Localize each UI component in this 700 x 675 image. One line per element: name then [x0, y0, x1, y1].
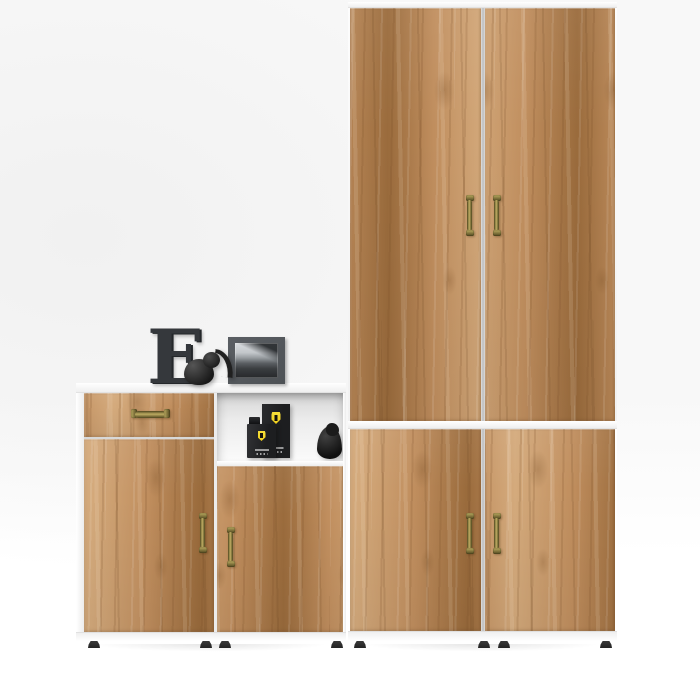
- panel-edge-right: [343, 393, 346, 632]
- scene: E: [0, 0, 700, 675]
- sideboard-base: [76, 632, 346, 641]
- panel-edge-left: [76, 393, 84, 632]
- sideboard-left-door: [84, 439, 214, 632]
- sideboard-right-door-handle: [227, 527, 235, 567]
- adjustable-foot: [478, 641, 490, 648]
- cabinet-top-surface: [348, 421, 617, 429]
- adjustable-foot: [498, 641, 510, 648]
- perfume-bottle: [247, 417, 276, 458]
- sideboard-right-column: [217, 393, 343, 632]
- open-shelf-niche: [217, 393, 343, 461]
- cabinet-base: [348, 631, 617, 641]
- wardrobe-left-door-handle: [466, 195, 474, 236]
- adjustable-foot: [88, 641, 100, 648]
- cabinet-left-door-handle: [466, 513, 474, 554]
- sideboard-left-door-handle: [199, 513, 207, 553]
- adjustable-foot: [331, 641, 343, 648]
- adjustable-foot: [600, 641, 612, 648]
- drawer-handle: [131, 409, 170, 422]
- elephant-head: [203, 352, 220, 368]
- left-sideboard: [76, 383, 346, 641]
- sideboard-right-door: [217, 466, 343, 632]
- sideboard-left-column: [84, 393, 214, 632]
- bird-figurine: [317, 426, 342, 459]
- wardrobe-right-door-handle: [493, 195, 501, 236]
- cabinet-left-door: [350, 429, 481, 631]
- tall-wardrobe: [348, 2, 617, 421]
- cabinet-right-door-handle: [493, 513, 501, 554]
- elephant-figurine: [184, 351, 231, 385]
- adjustable-foot: [354, 641, 366, 648]
- photo-landscape: [235, 343, 278, 378]
- adjustable-foot: [219, 641, 231, 648]
- adjustable-foot: [200, 641, 212, 648]
- photo-frame: [228, 337, 285, 384]
- low-cabinet: [348, 421, 617, 641]
- cabinet-right-door: [485, 429, 615, 631]
- wardrobe-right-door: [485, 8, 615, 421]
- wardrobe-left-door: [350, 8, 481, 421]
